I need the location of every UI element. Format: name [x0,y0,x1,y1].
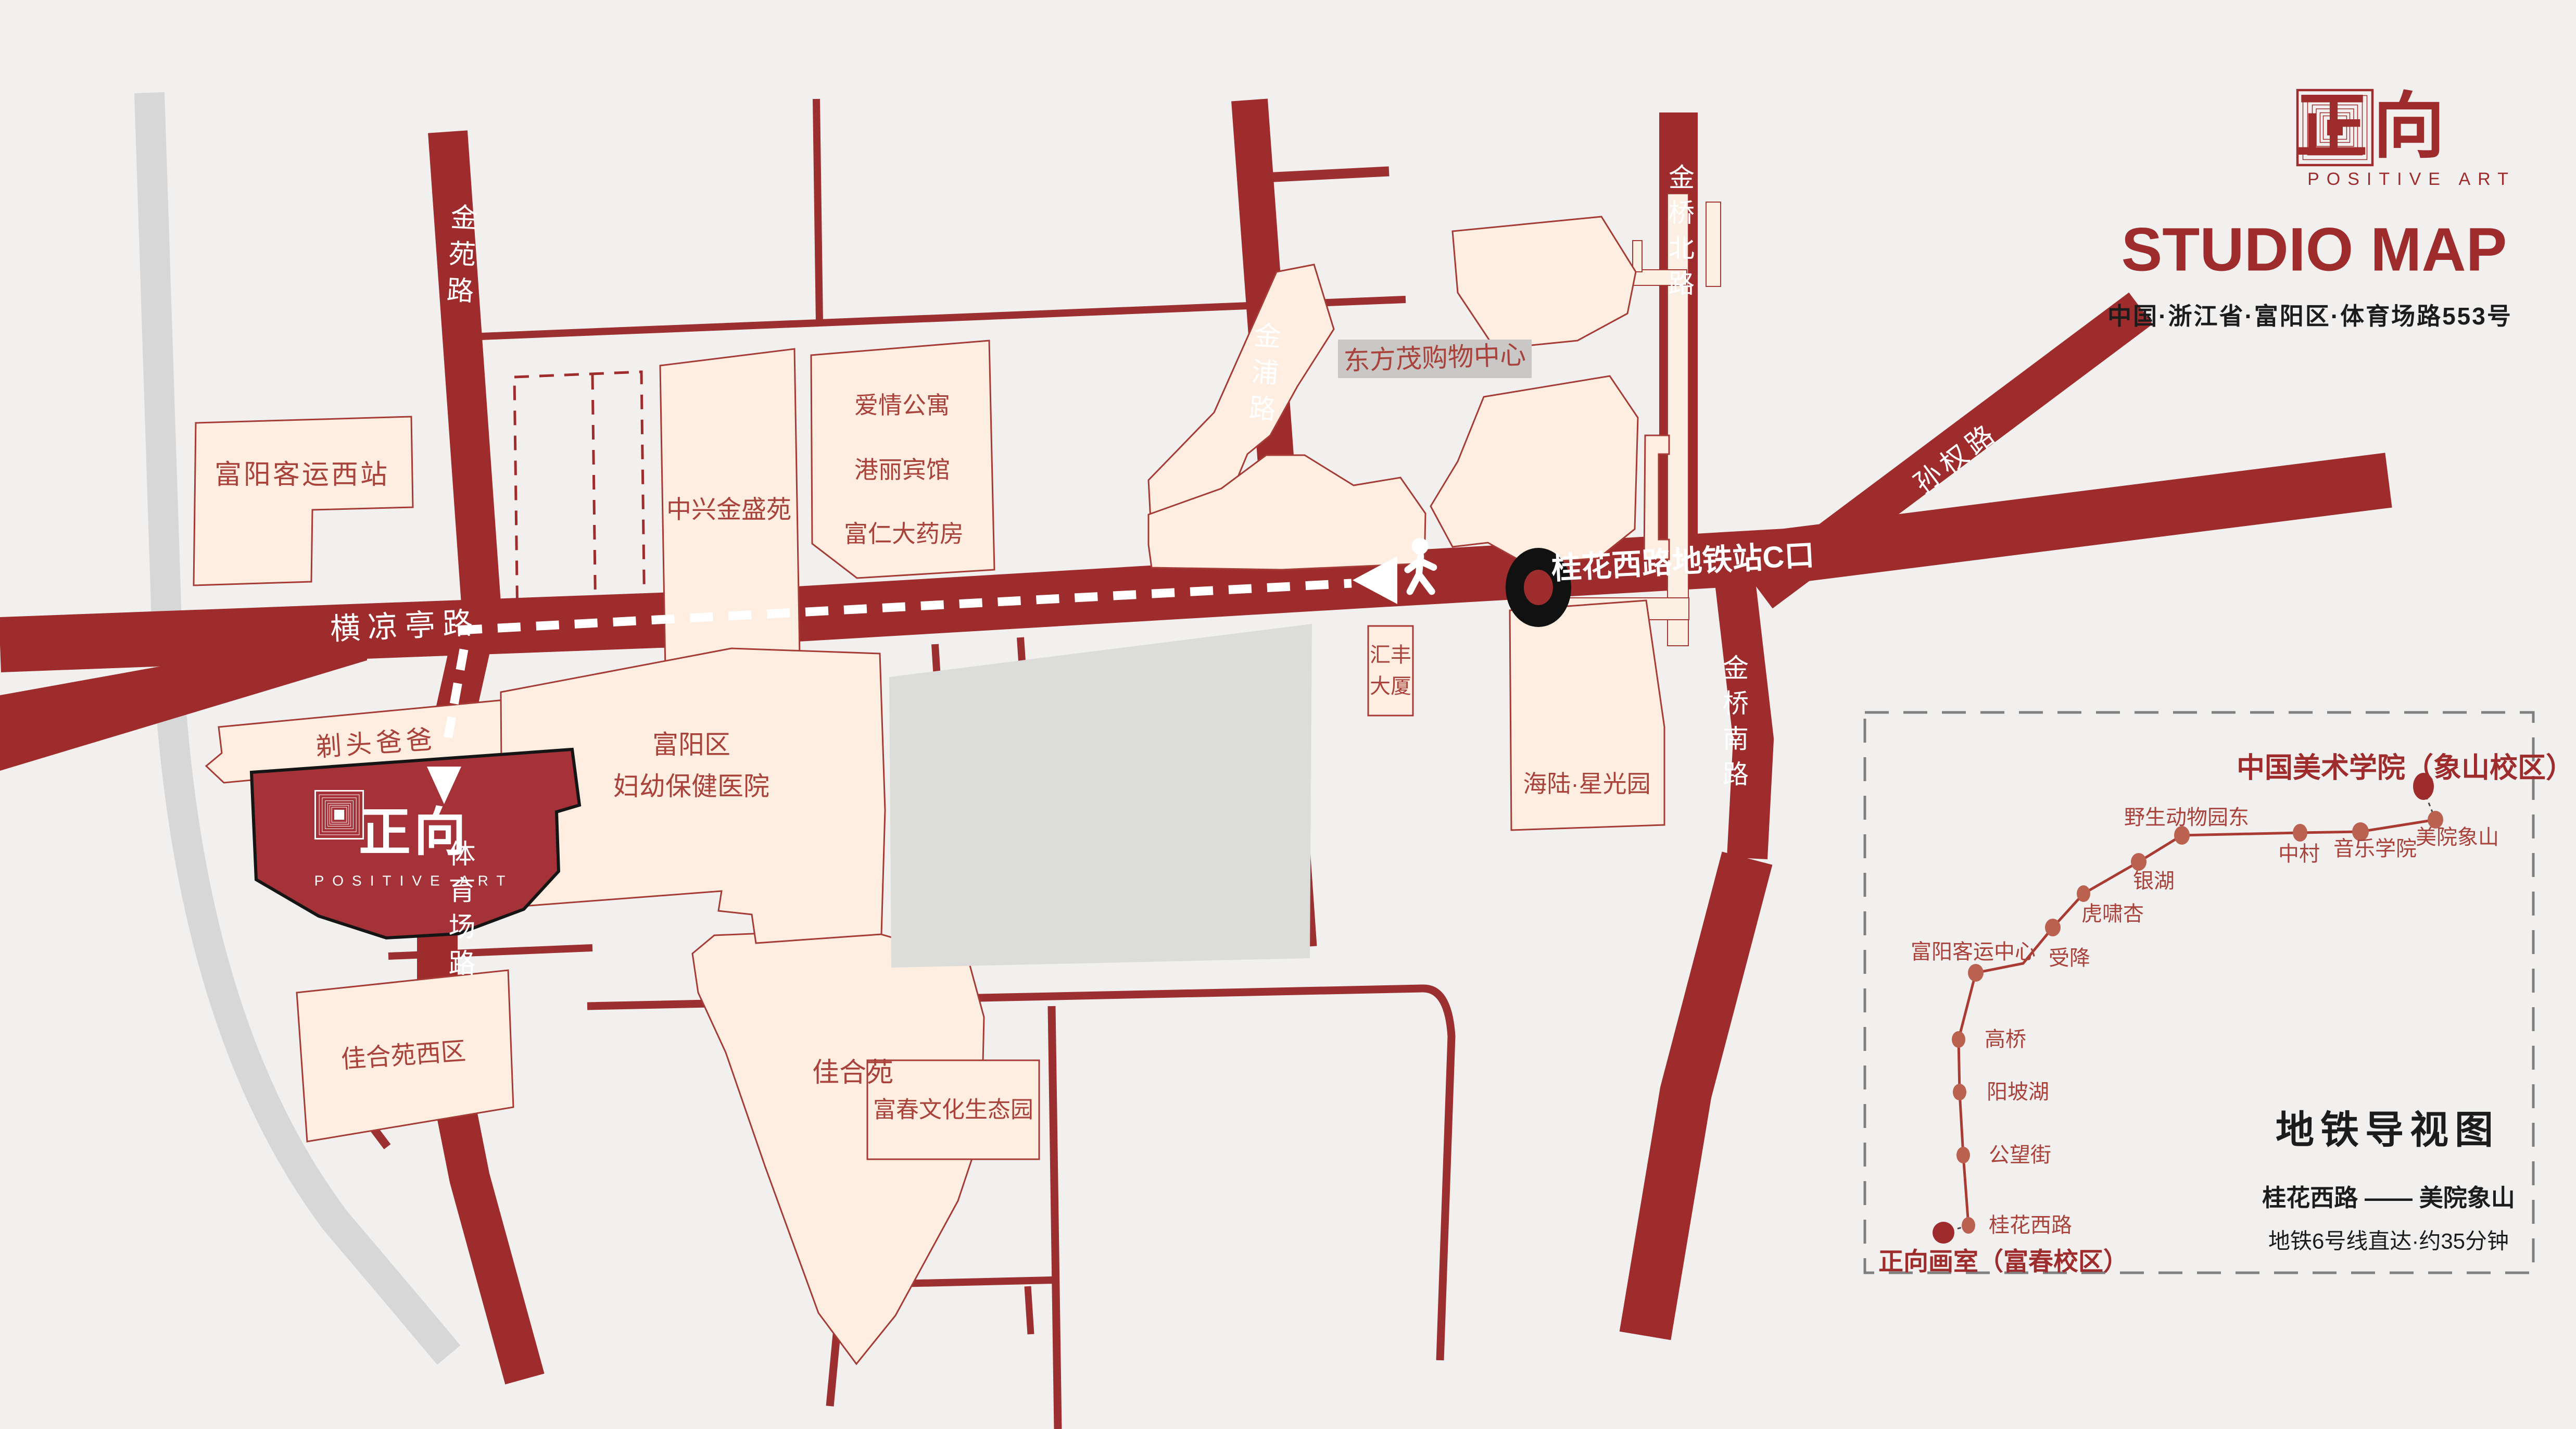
label-fuchun-park: 富春文化生态园 [873,1094,1033,1125]
metro-note: 地铁6号线直达·约35分钟 [2268,1227,2509,1257]
brand-logo-icon [2296,89,2374,167]
label-aiqing-apartment: 爱情公寓 [854,389,950,421]
page-title: STUDIO MAP [2122,208,2507,291]
brand-header: 正向 [2296,89,2450,164]
origin-dot [1933,1222,1954,1244]
road-label-jinyuan: 金苑路 [443,203,476,313]
studio-map-poster: 金苑路 金浦路 金桥北路 金桥南路 孙权路 横凉亭路 体育场路 桂花西路地铁站C… [0,0,2576,1429]
station-yinyue-xueyuan: 音乐学院 [2333,835,2417,863]
road-label-jinqiao-north: 金桥北路 [1666,164,1693,305]
metro-route-summary: 桂花西路 —— 美院象山 [2262,1182,2515,1214]
gray-block [889,624,1312,968]
station-gongwangjie: 公望街 [1989,1141,2051,1169]
metro-destination-label: 中国美术学院（象山校区） [2237,749,2574,787]
station-dots [1952,811,2443,1234]
studio-logo-icon [314,790,364,840]
building-mall-2 [1453,217,1636,349]
studio-logo-cn: 正向 [359,790,469,866]
road-label-jinpu: 金浦路 [1245,320,1280,431]
label-hospital: 富阳区 妇幼保健医院 [613,724,769,807]
station-meiyuan-xiangshan: 美院象山 [2416,823,2499,851]
studio-logo-en: POSITIVE ART [314,873,514,889]
road-label-hengliangting: 横凉亭路 [329,603,481,650]
station-yinhu: 银湖 [2133,867,2175,895]
station-yangpohu: 阳坡湖 [1987,1078,2049,1106]
road-jinqiao-south-lower [1645,858,1747,1336]
label-dongfangmao-mall: 东方茂购物中心 [1343,337,1526,379]
metro-origin-label: 正向画室（富春校区） [1878,1246,2128,1280]
metro-panel-title: 地铁导视图 [2276,1104,2499,1156]
station-fuyang-keyun-center: 富阳客运中心 [1911,938,2036,966]
label-coach-station: 富阳客运西站 [214,457,389,493]
road-label-jinqiao-south: 金桥南路 [1721,654,1747,796]
building-mall-3 [1431,376,1638,563]
station-guihuaxilu: 桂花西路 [1989,1211,2072,1239]
station-shoujiang: 受降 [2049,944,2090,972]
label-hailu-xingguangyuan: 海陆·星光园 [1523,768,1650,800]
label-gangli-hotel: 港丽宾馆 [854,454,950,486]
label-huifeng-tower: 汇丰 大厦 [1370,640,1411,702]
brand-en: POSITIVE ART [2307,168,2516,192]
label-furen-pharmacy: 富仁大药房 [844,518,964,550]
address-line: 中国·浙江省·富阳区·体育场路553号 [2107,300,2512,332]
station-gaoqiao: 高桥 [1985,1025,2026,1054]
studio-logo-block: 正向 POSITIVE ART [314,790,514,889]
building-coach-station [194,417,413,585]
dashed-building [514,372,645,624]
label-jiaheyuan: 佳合苑 [812,1055,893,1091]
station-yesheng-dongwuyuan-east: 野生动物园东 [2124,804,2249,832]
label-zhongxing: 中兴金盛苑 [666,494,791,528]
station-huxiaoxing: 虎啸杏 [2081,900,2144,928]
station-zhongcun: 中村 [2278,840,2320,868]
